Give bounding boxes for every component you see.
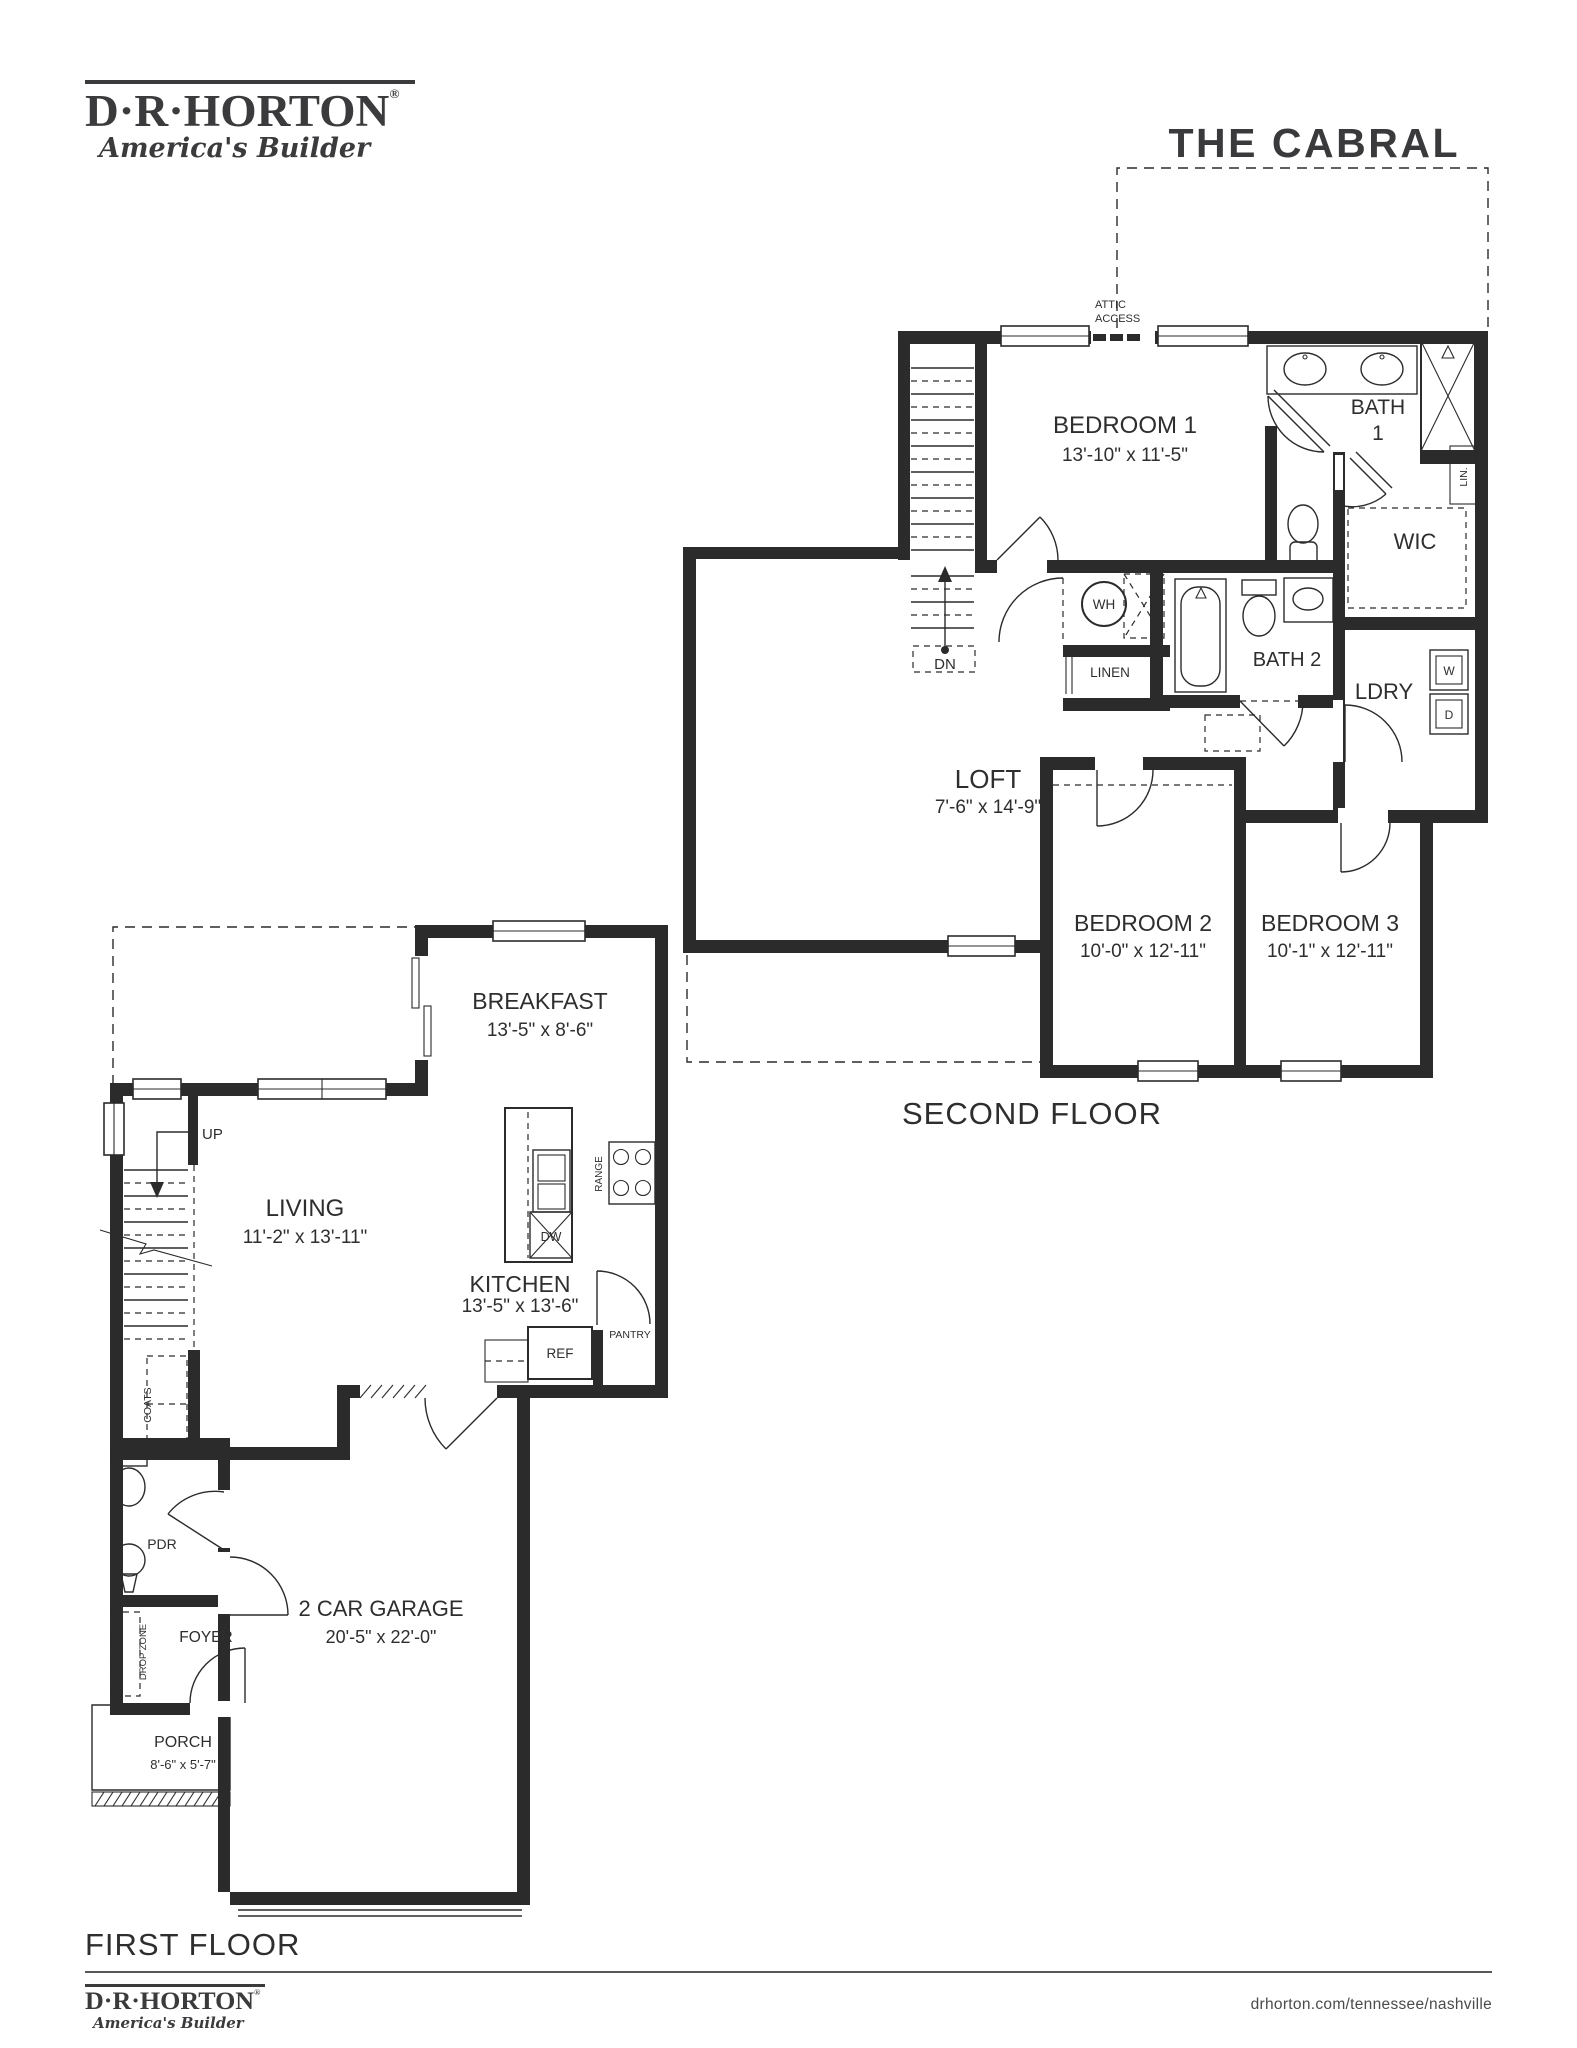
wic-label: WIC xyxy=(1394,529,1437,554)
bath1-label-1: BATH xyxy=(1351,396,1405,419)
foyer-label: FOYER xyxy=(179,1629,232,1646)
bedroom1-label: BEDROOM 1 xyxy=(1053,412,1197,439)
doors xyxy=(997,390,1392,872)
first-floor-title: FIRST FLOOR xyxy=(85,1927,300,1962)
loft-dims: 7'-6" x 14'-9" xyxy=(935,797,1041,818)
wic-closet: LIN. WIC xyxy=(1348,446,1476,608)
first-floor-plan: UP COATS DW xyxy=(85,921,668,1962)
title-leader-dashed-box xyxy=(1117,168,1488,328)
dryer-label: D xyxy=(1445,708,1454,722)
door-arc xyxy=(1341,823,1390,872)
footer-rule xyxy=(85,1971,1492,1973)
powder-room: PDR xyxy=(112,1450,224,1592)
footer-url: drhorton.com/tennessee/nashville xyxy=(1251,1996,1492,2014)
attic-access-label-1: ATTIC xyxy=(1095,299,1126,311)
water-heater-closet: WH xyxy=(999,574,1164,642)
window xyxy=(258,1079,386,1099)
washer-label: W xyxy=(1443,664,1455,678)
footer-brand-logo: D·R·HORTON® America's Builder xyxy=(85,1984,265,2032)
window xyxy=(104,1103,124,1155)
ref-label: REF xyxy=(547,1346,574,1361)
second-floor-title: SECOND FLOOR xyxy=(902,1096,1162,1131)
laundry-room: W D LDRY xyxy=(1345,650,1468,762)
wh-label: WH xyxy=(1093,597,1116,612)
door-arc xyxy=(1345,705,1402,762)
bath1-vanity xyxy=(1267,346,1417,394)
drop-zone-label: DROP ZONE xyxy=(138,1624,149,1680)
attic-access-label-2: ACCESS xyxy=(1095,313,1140,325)
kitchen-label: KITCHEN xyxy=(470,1271,571,1297)
loft-label: LOFT xyxy=(955,764,1022,794)
door-arc xyxy=(1339,494,1386,507)
patio-dashed-outline xyxy=(113,927,415,1085)
cased-opening-hatch xyxy=(360,1385,426,1398)
logo-name: D·R·HORTON® xyxy=(85,1989,272,2015)
sink-icon xyxy=(1284,353,1326,385)
bathtub-icon xyxy=(1175,579,1226,692)
door-arc xyxy=(168,1491,224,1514)
door-arc xyxy=(597,1271,650,1324)
linen-niche-label: LIN. xyxy=(1458,467,1470,486)
breakfast-dims: 13'-5" x 8'-6" xyxy=(487,1020,593,1041)
door-arc xyxy=(230,1557,288,1615)
window xyxy=(1138,1061,1198,1081)
window xyxy=(1001,326,1089,346)
door-leaf xyxy=(997,517,1040,560)
door-arc xyxy=(1040,517,1058,560)
window xyxy=(1281,1061,1341,1081)
door-leaf xyxy=(1274,390,1330,446)
bath1-label-2: 1 xyxy=(1372,422,1384,445)
coats-closet: COATS xyxy=(142,1356,187,1452)
bath2-fixtures: BATH 2 xyxy=(1175,578,1333,746)
vanity-sink-icon xyxy=(1284,578,1333,622)
pantry: PANTRY xyxy=(597,1271,651,1341)
bedroom1-dims: 13'-10" x 11'-5" xyxy=(1062,445,1188,466)
bedroom3-label: BEDROOM 3 xyxy=(1261,910,1399,936)
stairs-dn-label: DN xyxy=(934,656,956,673)
second-floor-plan: ATTIC ACCESS DN xyxy=(683,168,1488,1131)
door-leaf xyxy=(446,1398,497,1449)
bath2-label: BATH 2 xyxy=(1253,649,1322,671)
logo-name-text: D·R·HORTON xyxy=(85,1988,254,2015)
staircase-down: DN xyxy=(911,368,975,673)
footprint-dashed-outline xyxy=(687,955,1040,1062)
window xyxy=(948,936,1015,956)
door-arc xyxy=(999,578,1063,642)
garage-dims: 20'-5" x 22'-0" xyxy=(326,1627,437,1647)
registered-mark: ® xyxy=(254,1988,260,1997)
hall-access-dashed xyxy=(1205,715,1260,751)
floorplan-sheet: D·R·HORTON® America's Builder THE CABRAL xyxy=(0,0,1577,2048)
dw-label: DW xyxy=(541,1230,562,1244)
garage-doors xyxy=(230,1398,522,1916)
logo-rule xyxy=(85,1984,265,1987)
kitchen-dims: 13'-5" x 13'-6" xyxy=(462,1296,579,1317)
porch-dims: 8'-6" x 5'-7" xyxy=(150,1757,216,1772)
coats-label: COATS xyxy=(142,1387,154,1422)
range-label: RANGE xyxy=(594,1156,605,1192)
bedroom2-label: BEDROOM 2 xyxy=(1074,910,1212,936)
window xyxy=(1158,326,1248,346)
bedroom2-dims: 10'-0" x 12'-11" xyxy=(1080,941,1206,962)
garage-label: 2 CAR GARAGE xyxy=(298,1596,463,1621)
door-arc xyxy=(425,1398,446,1449)
pdr-label: PDR xyxy=(147,1536,177,1552)
linen-label: LINEN xyxy=(1090,665,1130,680)
living-dims: 11'-2" x 13'-11" xyxy=(243,1227,368,1248)
ldry-label: LDRY xyxy=(1355,679,1414,704)
walls xyxy=(683,331,1488,1078)
logo-tagline: America's Builder xyxy=(93,2014,265,2032)
front-door-arc xyxy=(190,1648,245,1703)
door-arc xyxy=(1097,770,1153,826)
porch: PORCH 8'-6" x 5'-7" xyxy=(92,1705,230,1806)
kitchen-island: DW xyxy=(505,1108,572,1262)
living-label: LIVING xyxy=(266,1195,345,1222)
toilet-icon xyxy=(1288,505,1318,566)
sliding-door xyxy=(412,956,431,1060)
porch-label: PORCH xyxy=(154,1734,212,1751)
range-icon: RANGE xyxy=(594,1142,655,1204)
breakfast-label: BREAKFAST xyxy=(472,988,607,1014)
shower-icon xyxy=(1421,341,1475,451)
stairs-up-label: UP xyxy=(202,1126,223,1143)
bedroom3-dims: 10'-1" x 12'-11" xyxy=(1267,941,1393,962)
sink-icon xyxy=(1361,353,1403,385)
window xyxy=(133,1079,181,1099)
toilet-icon xyxy=(1242,580,1276,636)
attic-access: ATTIC ACCESS xyxy=(1091,299,1155,344)
refrigerator-icon: REF xyxy=(485,1327,592,1382)
dishwasher-icon: DW xyxy=(530,1212,572,1258)
plans-canvas: ATTIC ACCESS DN xyxy=(0,0,1577,2048)
pantry-label: PANTRY xyxy=(609,1329,651,1341)
window xyxy=(493,921,585,941)
